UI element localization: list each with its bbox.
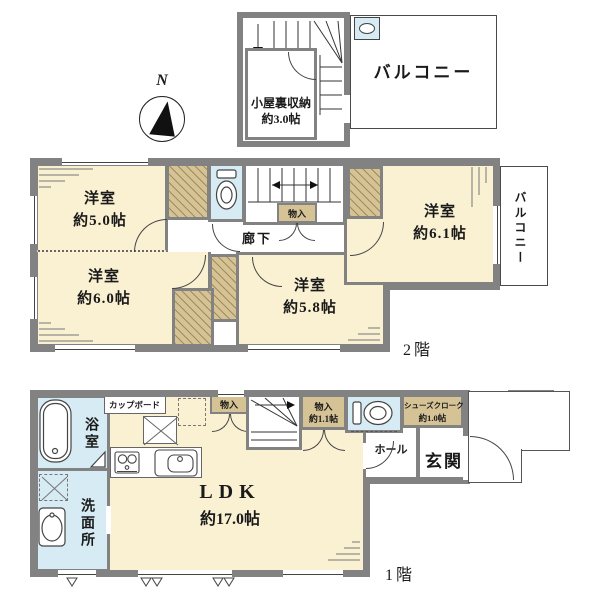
- room-name: 洋室: [240, 276, 380, 298]
- ldk-size: 約17.0帖: [180, 505, 280, 529]
- ceiling-slope-lines: [326, 538, 362, 564]
- shoes-closet-size: 約1.0帖: [404, 412, 461, 424]
- attic-vent-box: [354, 17, 380, 40]
- floor1-bath-label: 浴室: [80, 408, 100, 460]
- washbasin-icon: [38, 507, 66, 547]
- floor1-entrance-label: 玄関: [420, 447, 468, 472]
- floor2-balcony-label: バルコニー: [512, 178, 529, 278]
- floor1-storage-1-1: 物入 約1.1帖: [300, 393, 347, 430]
- compass-north-label: N: [152, 72, 172, 90]
- ceiling-slope-lines: [39, 167, 95, 189]
- floor2-bedroom-sw-label: 洋室 約6.0帖: [35, 267, 173, 311]
- wall-segment: [30, 158, 37, 352]
- toilet-icon: [214, 168, 239, 216]
- floor2-label: 2階: [392, 336, 444, 360]
- room-size: 約6.0帖: [35, 289, 173, 311]
- floor2-closet-nw: [166, 163, 210, 220]
- room-size: 約5.0帖: [35, 211, 165, 233]
- storage-size: 約1.1帖: [303, 412, 344, 425]
- wall-segment: [383, 283, 500, 290]
- floor-plan: N 小屋裏収納 約3.0帖 バルコニー: [0, 0, 600, 600]
- ceiling-slope-lines: [346, 324, 382, 344]
- floor1-washroom-label: 洗面所: [76, 488, 96, 558]
- window: [58, 570, 96, 577]
- window: [218, 390, 244, 397]
- attic-storage-label: 小屋裏収納 約3.0帖: [247, 95, 315, 127]
- wall-segment: [30, 390, 37, 577]
- wall-segment: [30, 390, 470, 397]
- toilet-icon: [351, 399, 397, 427]
- washroom-opening: [106, 506, 111, 534]
- attic-storage-name: 小屋裏収納: [247, 95, 315, 111]
- shutter-marker-icon: [66, 577, 78, 587]
- cupboard: カップボード: [104, 394, 166, 414]
- floor1-small-storage-label: 物入: [212, 398, 246, 411]
- room-name: 洋室: [35, 267, 173, 289]
- floor2-storage-label: 物入: [279, 207, 315, 220]
- wall-segment: [363, 477, 370, 577]
- ldk-name: LDK: [185, 481, 275, 504]
- ceiling-slope-lines: [469, 167, 489, 209]
- compass: N: [132, 72, 192, 150]
- attic-balcony-label: バルコニー: [352, 58, 495, 83]
- floor2-corridor-label: 廊下: [233, 228, 281, 247]
- toilet-sliding-door: [351, 431, 397, 432]
- window: [62, 158, 148, 165]
- floor2-closet-sw: [172, 288, 214, 347]
- room-size: 約5.8帖: [240, 298, 380, 320]
- window: [55, 345, 135, 352]
- stove-icon: [114, 450, 140, 476]
- floor1-stairs: [249, 396, 299, 447]
- cupboard-label: カップボード: [105, 399, 164, 411]
- floor1-label: 1階: [374, 561, 426, 585]
- window: [138, 570, 232, 577]
- kitchen-sink-icon: [154, 449, 198, 477]
- shutter-marker-icon: [151, 577, 163, 587]
- refrigerator-space: [143, 416, 177, 444]
- room-name: 洋室: [370, 202, 510, 224]
- attic-storage-size: 約3.0帖: [247, 111, 315, 127]
- dotted-furniture-space: [178, 398, 206, 426]
- ceiling-slope-lines: [39, 321, 95, 343]
- room-size: 約6.1帖: [370, 224, 510, 246]
- washer-pan-icon: [39, 474, 68, 501]
- window: [283, 570, 343, 577]
- shutter-marker-icon: [223, 577, 235, 587]
- attic-vent-icon: [359, 23, 375, 34]
- room-name: 洋室: [35, 189, 165, 211]
- floor1-shoes-closet: シューズクローク 約1.0帖: [401, 393, 464, 428]
- floor2-bedroom-s-label: 洋室 約5.8帖: [240, 276, 380, 320]
- shoes-closet-name: シューズクローク: [404, 400, 461, 411]
- window: [248, 345, 340, 352]
- floor2-bedroom-ne-label: 洋室 約6.1帖: [370, 202, 510, 246]
- wall-segment: [363, 477, 470, 484]
- bathtub-icon: [39, 399, 72, 463]
- floor2-understair-storage: 物入: [277, 203, 317, 223]
- wall-segment: [383, 283, 390, 352]
- floor2-bedroom-nw-label: 洋室 約5.0帖: [35, 189, 165, 233]
